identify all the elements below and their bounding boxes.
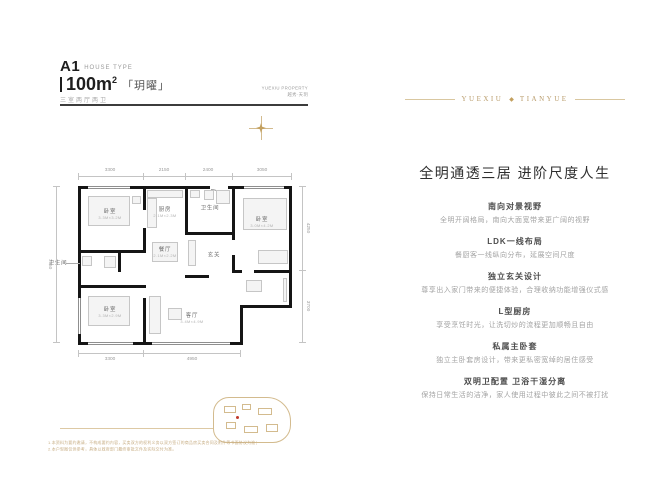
header-rule: [60, 104, 308, 106]
wall: [143, 298, 146, 345]
room-name: 餐厅: [159, 245, 171, 253]
nightstand: [132, 196, 141, 204]
feature-body: 享受烹饪时光，让洗切炒的流程更加顺畅且自由: [398, 320, 632, 330]
room-name: 客厅: [186, 311, 198, 319]
type-suffix-text: HOUSE TYPE: [84, 65, 133, 71]
shower: [104, 256, 116, 268]
wall: [240, 305, 243, 345]
dim-value: 2400: [203, 168, 214, 173]
window: [88, 342, 133, 345]
feature-heading: LDK一线布局: [398, 236, 632, 247]
feature-heading: 独立玄关设计: [398, 271, 632, 282]
room-label-entry: 玄关: [183, 251, 245, 259]
dim-value: 3700: [306, 301, 311, 312]
dim-tick: [291, 173, 292, 180]
minimap-location-dot: [236, 416, 239, 419]
disclaimer: 1.本资料为要约邀请，不构成要约内容，买卖双方的权利义务以双方签订的商品房买卖合…: [48, 440, 299, 453]
wall: [232, 270, 242, 273]
room-name: 卧室: [256, 215, 268, 223]
dim-tick: [185, 173, 186, 180]
compass-star: [256, 123, 266, 133]
site-minimap: [213, 397, 291, 443]
brand-small-text: YUEXIU PROPERTY 越秀·天玥: [236, 86, 308, 99]
banner-left-text: YUEXIU: [461, 95, 503, 103]
dim-tick: [78, 350, 79, 357]
dim-value: 4250: [306, 223, 311, 234]
room-size: 2.1M×2.2M: [153, 254, 176, 259]
dim-tick: [299, 342, 306, 343]
suite-name: 「玥曜」: [122, 77, 170, 93]
window: [244, 186, 284, 189]
room-size: 3.3M×3.2M: [98, 216, 121, 221]
dim-line-right: [302, 186, 303, 342]
page-title: 全明通透三居 进阶尺度人生: [398, 163, 632, 183]
feature-item: 双明卫配置 卫浴干湿分离 保持日常生活的洁净，家人使用过程中彼此之间不被打扰: [398, 376, 632, 400]
diamond-icon: ◆: [509, 96, 514, 103]
area-sup: 2: [112, 75, 117, 85]
disclaimer-line1: 1.本资料为要约邀请，不构成要约内容，买卖双方的权利义务以双方签订的商品房买卖合…: [48, 440, 299, 447]
house-type-code: A1HOUSE TYPE: [60, 58, 133, 75]
dim-tick: [232, 173, 233, 180]
feature-body: 独立主卧套房设计，带来更私密宽绰的居住感受: [398, 355, 632, 365]
window: [88, 186, 130, 189]
dim-tick: [240, 350, 241, 357]
feature-item: 南向对景视野 全明开阔格局，南向大面宽带来更广阔的视野: [398, 201, 632, 225]
area-row: 100m2 「玥曜」: [60, 74, 170, 95]
feature-body: 全明开阔格局，南向大面宽带来更广阔的视野: [398, 215, 632, 225]
layout-text: 三室两厅两卫: [60, 95, 108, 104]
compass-icon: [249, 116, 273, 140]
sink: [190, 190, 200, 198]
brand-banner: YUEXIU ◆ TIANYUE: [405, 95, 625, 103]
minimap-building: [266, 424, 278, 432]
shower: [216, 190, 230, 204]
minimap-leader-line: [60, 428, 213, 429]
room-label-master-bedroom: 卧室 3.0M×4.2M: [231, 215, 293, 228]
dim-tick: [53, 186, 60, 187]
dim-value: 3300: [105, 168, 116, 173]
feature-item: 独立玄关设计 尊享出入家门带来的便捷体验，合理收纳功能增强仪式感: [398, 271, 632, 295]
room-name: 卫生间: [201, 204, 220, 212]
dim-value: 4950: [187, 357, 198, 362]
dim-value: 2150: [159, 168, 170, 173]
dim-tick: [53, 342, 60, 343]
wall: [185, 232, 235, 235]
label-leader-line: [66, 263, 80, 264]
brochure-page: A1HOUSE TYPE 100m2 「玥曜」 三室两厅两卫 YUEXIU PR…: [0, 0, 660, 481]
wardrobe: [258, 250, 288, 264]
sofa: [149, 296, 161, 334]
dim-value: 3050: [257, 168, 268, 173]
room-label-living: 客厅 3.4M×4.9M: [161, 311, 223, 324]
area-value: 100m2: [66, 74, 117, 95]
room-name: 玄关: [208, 251, 220, 259]
room-size: 3.0M×4.2M: [250, 224, 273, 229]
feature-body: 尊享出入家门带来的便捷体验，合理收纳功能增强仪式感: [398, 285, 632, 295]
wall: [289, 186, 292, 308]
wall: [240, 305, 292, 308]
dim-value: 3300: [105, 357, 116, 362]
feature-body: 餐厨客一线纵向分布，延展空间尺度: [398, 250, 632, 260]
window: [152, 342, 230, 345]
room-size: 3.3M×2.9M: [98, 314, 121, 319]
type-code-text: A1: [60, 58, 80, 75]
room-size: 2.1M×2.3M: [153, 214, 176, 219]
wall: [185, 275, 209, 278]
feature-heading: 私属主卧套: [398, 341, 632, 352]
wall: [78, 285, 146, 288]
feature-item: L型厨房 享受烹饪时光，让洗切炒的流程更加顺畅且自由: [398, 306, 632, 330]
minimap-building: [244, 426, 258, 433]
feature-heading: L型厨房: [398, 306, 632, 317]
area-number: 100m: [66, 74, 112, 94]
wall: [232, 186, 235, 240]
room-name: 卧室: [104, 305, 116, 313]
minimap-building: [226, 422, 236, 429]
dim-tick: [299, 186, 306, 187]
room-size: 3.4M×4.9M: [180, 320, 203, 325]
dim-line-bottom: [78, 353, 240, 354]
feature-heading: 双明卫配置 卫浴干湿分离: [398, 376, 632, 387]
banner-right-text: TIANYUE: [520, 95, 569, 103]
dim-line-left: [56, 186, 57, 342]
dim-tick: [143, 173, 144, 180]
dim-tick: [143, 350, 144, 357]
minimap-building: [258, 408, 272, 415]
room-label-bedroom-a: 卧室 3.3M×3.2M: [79, 207, 141, 220]
toilet: [204, 190, 214, 200]
disclaimer-line2: 2.本户型图仅供参考，具体以政府部门最终审批文件及实际交付为准。: [48, 447, 299, 454]
room-name: 厨房: [159, 205, 171, 213]
dim-tick: [78, 173, 79, 180]
tv-cabinet: [283, 278, 287, 302]
minimap-building: [224, 406, 236, 413]
feature-item: 私属主卧套 独立主卧套房设计，带来更私密宽绰的居住感受: [398, 341, 632, 365]
feature-list: 南向对景视野 全明开阔格局，南向大面宽带来更广阔的视野 LDK一线布局 餐厨客一…: [398, 201, 632, 400]
feature-item: LDK一线布局 餐厨客一线纵向分布，延展空间尺度: [398, 236, 632, 260]
feature-heading: 南向对景视野: [398, 201, 632, 212]
dim-tick: [299, 270, 306, 271]
feature-body: 保持日常生活的洁净，家人使用过程中彼此之间不被打扰: [398, 390, 632, 400]
bath-fixture: [246, 280, 262, 292]
banner-line-right: [575, 99, 625, 100]
brand-line2: 越秀·天玥: [236, 92, 308, 98]
room-label-bathroom: 卫生间: [179, 204, 241, 212]
wall: [118, 250, 121, 272]
kitchen-counter: [147, 190, 183, 198]
banner-line-left: [405, 99, 455, 100]
room-label-bedroom-b: 卧室 3.3M×2.9M: [79, 305, 141, 318]
dim-value: 7950: [48, 259, 53, 270]
wall: [254, 270, 292, 273]
room-name: 卧室: [104, 207, 116, 215]
accent-bar: [60, 77, 62, 92]
minimap-building: [242, 404, 251, 410]
